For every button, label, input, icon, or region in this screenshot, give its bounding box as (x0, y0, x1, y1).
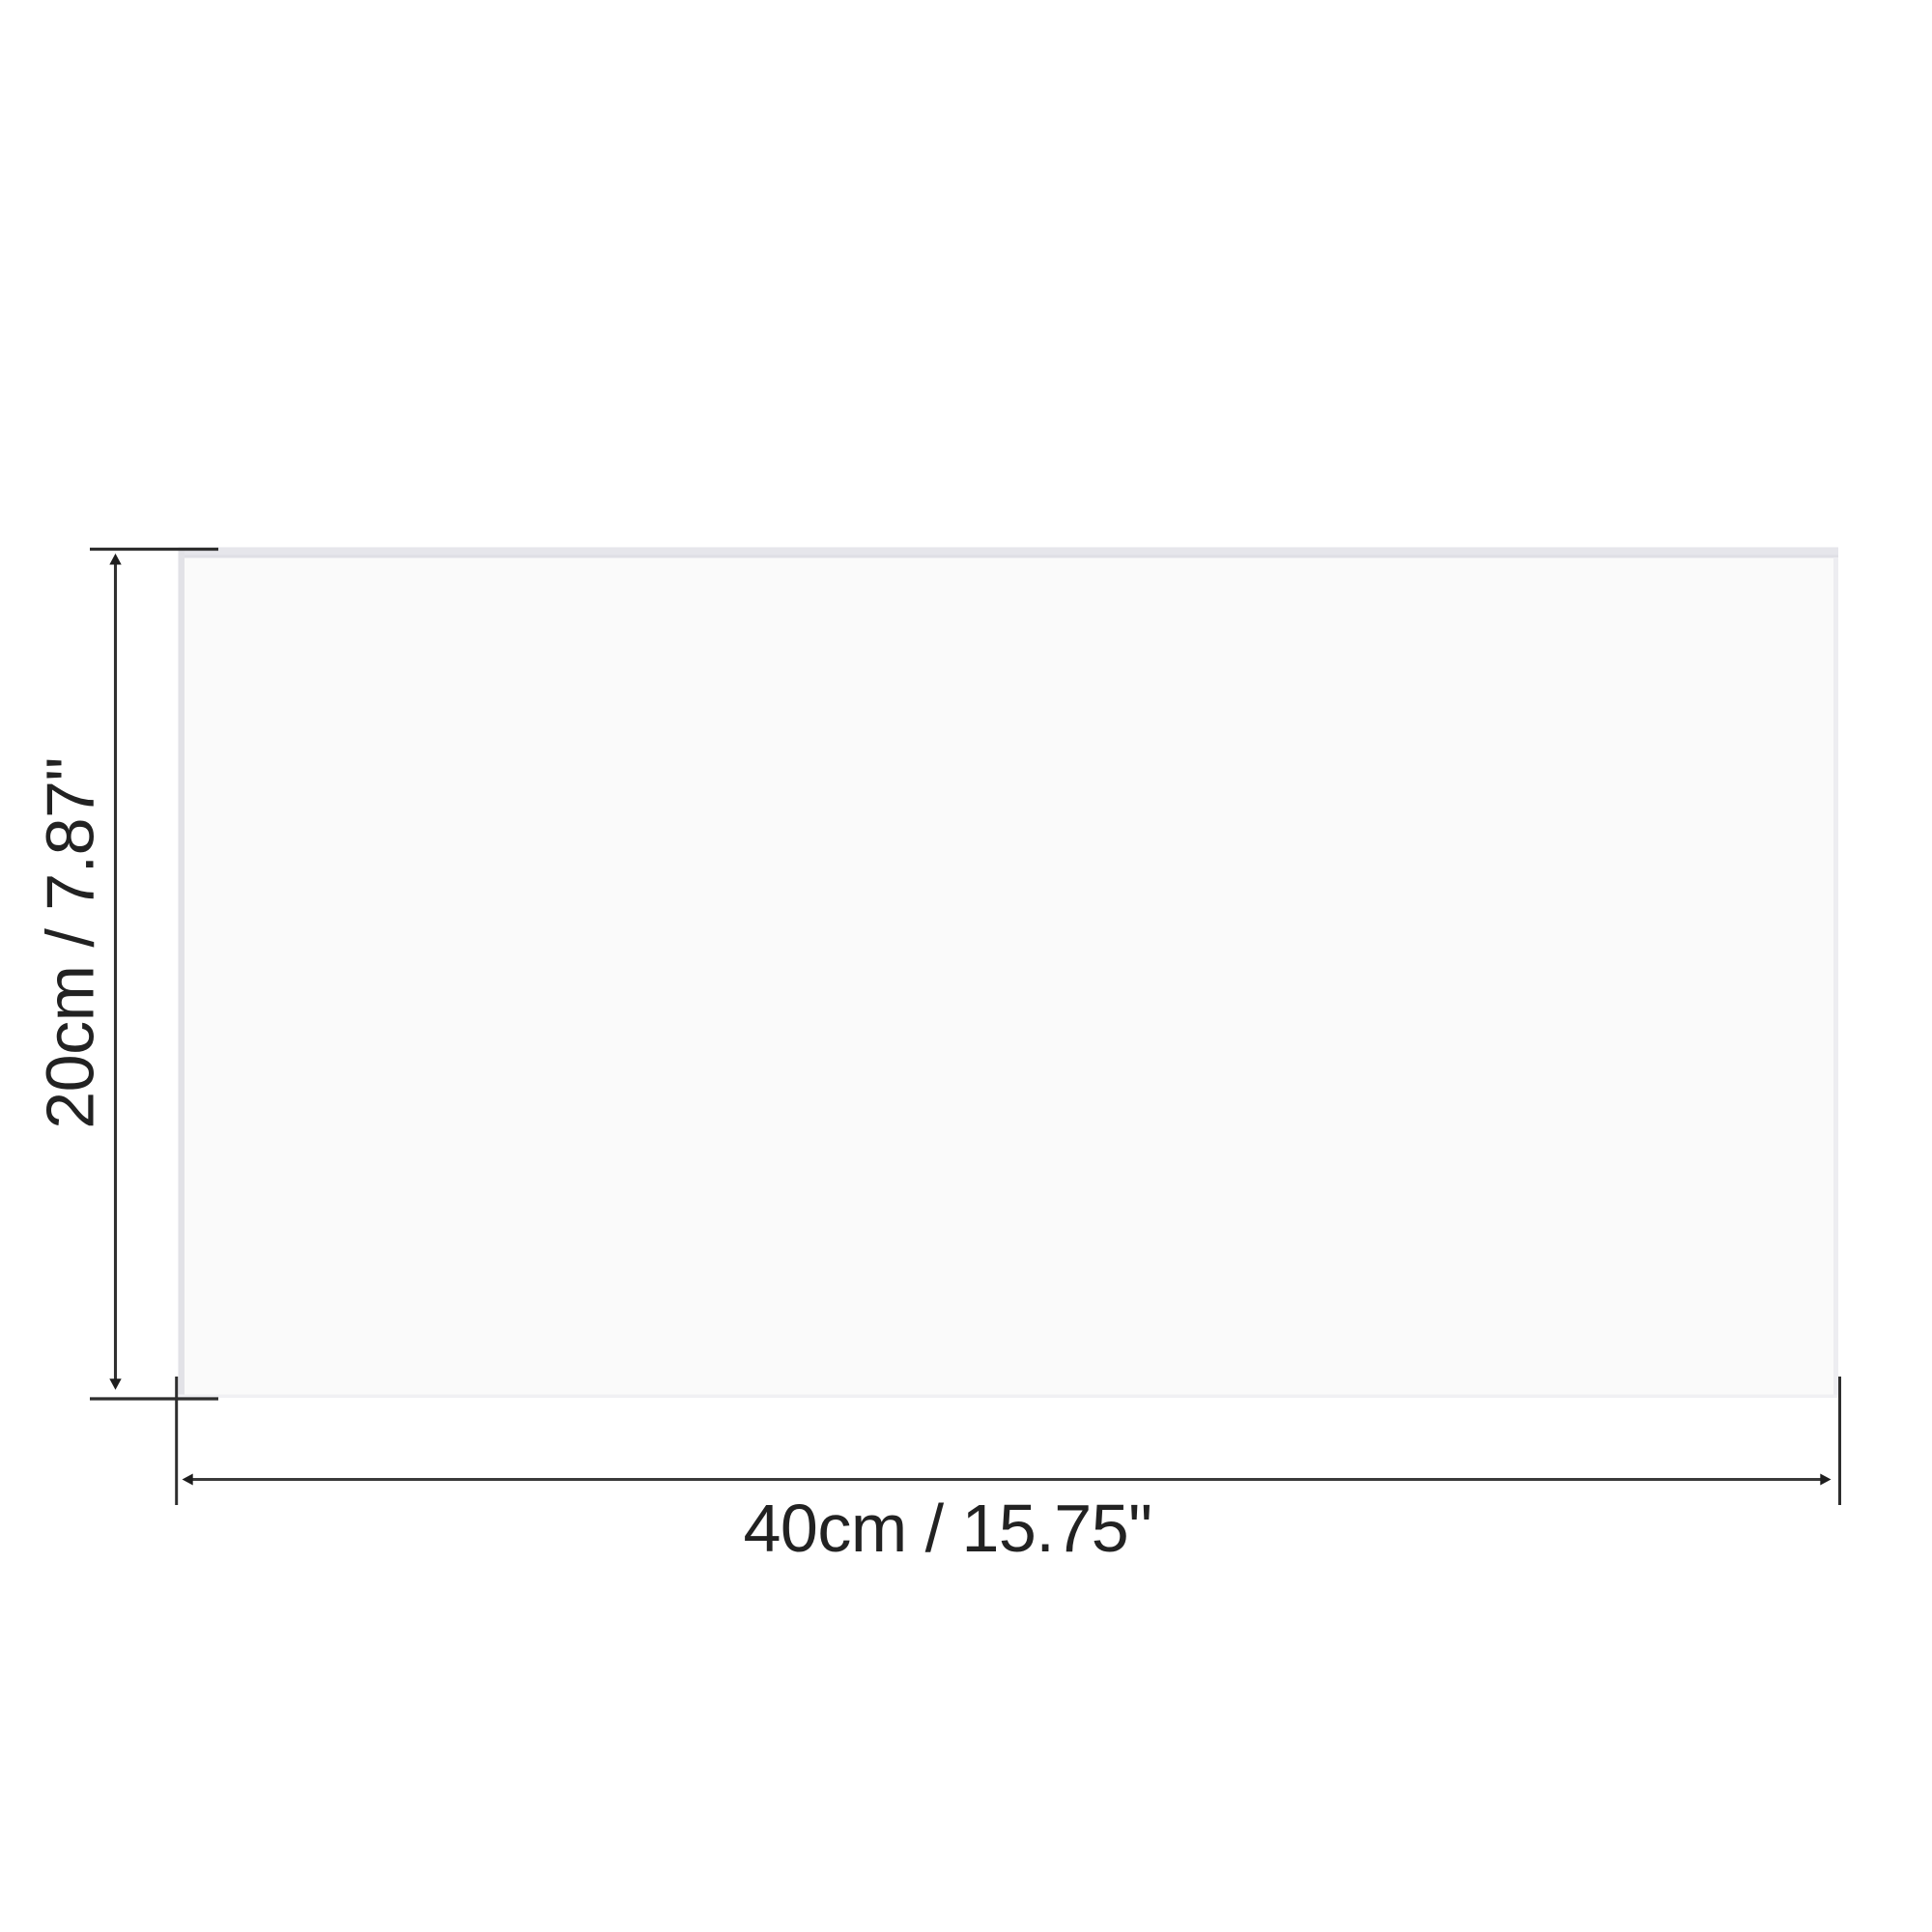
svg-text:20cm / 7.87": 20cm / 7.87" (33, 757, 108, 1129)
svg-text:40cm / 15.75": 40cm / 15.75" (743, 1491, 1151, 1566)
